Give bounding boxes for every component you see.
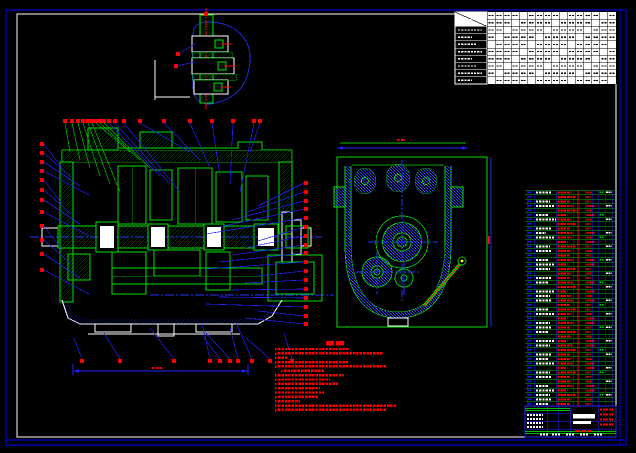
detail-view [155,8,250,110]
side-section-view [334,157,487,327]
cad-canvas[interactable] [0,0,636,453]
title-block [525,406,616,437]
gear-parameter-table [455,12,616,84]
technical-notes [275,341,396,411]
drawing-sheet[interactable] [0,0,636,453]
parts-list [525,190,616,406]
leader-lines [44,44,304,359]
